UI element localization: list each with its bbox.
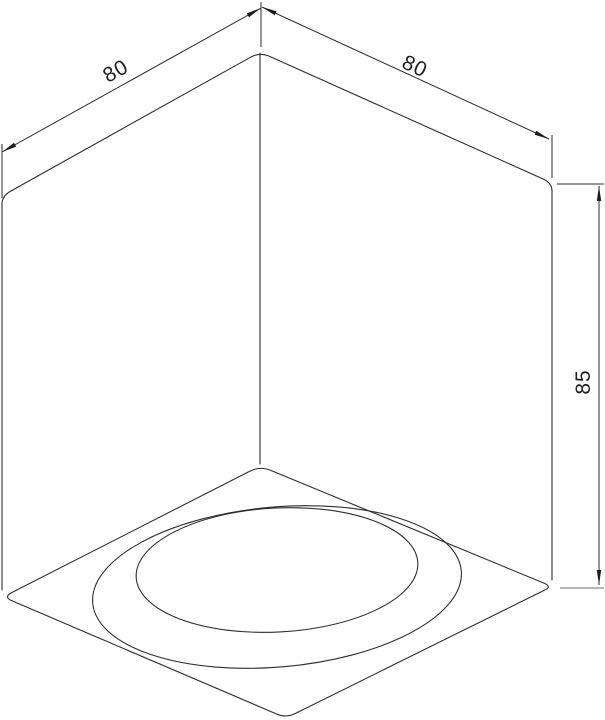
dimension-line-80-left <box>2 8 261 152</box>
fixture-silhouette-outline <box>2 54 552 590</box>
arrowhead-80-left-outer <box>2 143 16 152</box>
technical-drawing-canvas: 80 80 85 <box>0 0 605 720</box>
trim-ring-ellipse <box>86 491 469 683</box>
lamp-circle-ellipse <box>133 501 421 640</box>
arrowhead-85-top <box>597 186 601 201</box>
downlight-dimension-drawing: 80 80 85 <box>0 0 605 720</box>
arrowhead-80-left-apex <box>247 8 261 17</box>
arrowhead-80-right-apex <box>262 7 277 15</box>
bottom-face-outline <box>8 468 549 716</box>
arrowhead-85-bottom <box>597 570 601 585</box>
dim-label-height: 85 <box>572 369 595 394</box>
dim-label-width-right: 80 <box>398 51 431 83</box>
arrowhead-80-right-outer <box>535 131 550 139</box>
